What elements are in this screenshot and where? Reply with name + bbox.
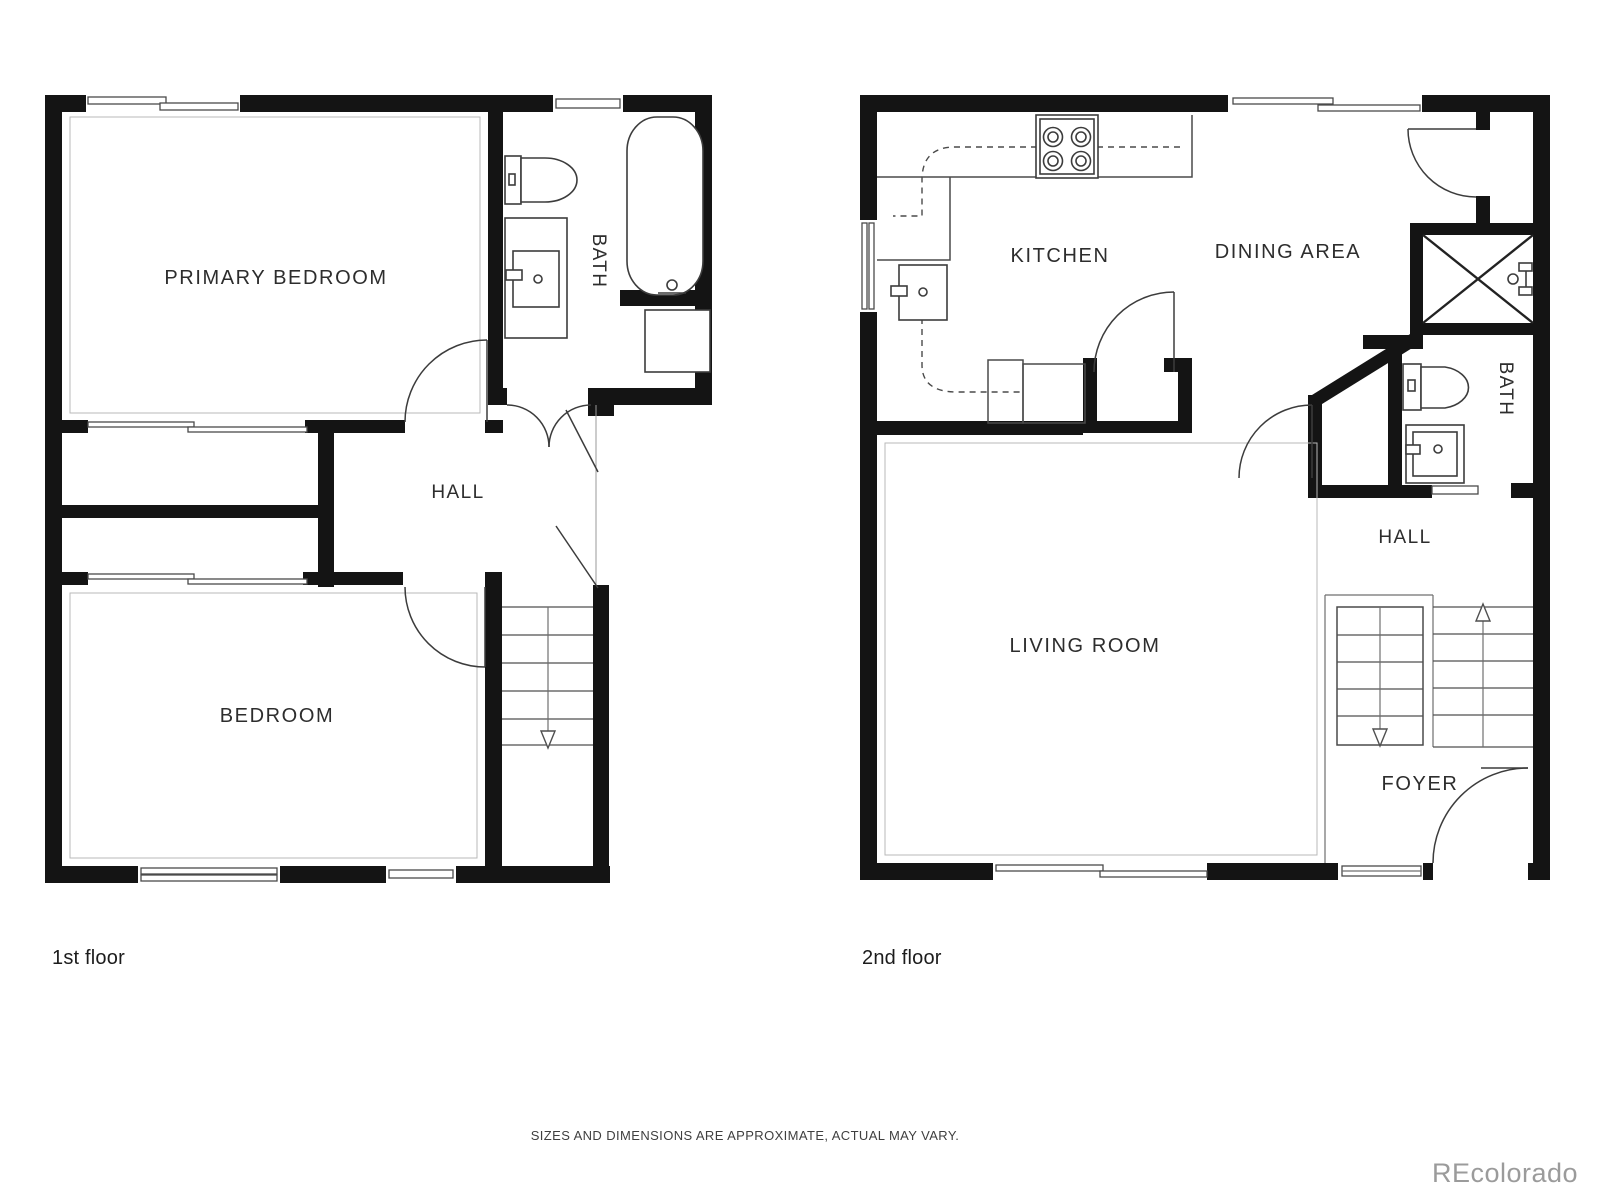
shower-icon: [1423, 235, 1533, 323]
second-floor-plan: KITCHEN DINING AREA BATH HALL LIVING ROO…: [860, 95, 1550, 880]
floor-caption-1: 1st floor: [52, 947, 125, 969]
second-floor-windows: [860, 95, 1550, 880]
first-floor-plan: PRIMARY BEDROOM BATH HALL BEDROOM: [45, 95, 712, 883]
vanity-sink-icon-2: [1406, 425, 1464, 483]
room-label-hall-2: HALL: [1378, 527, 1431, 548]
toilet-icon-2: [1403, 364, 1468, 410]
first-floor-stairs: [502, 607, 593, 748]
bathtub-icon: [627, 117, 703, 295]
kitchen-fixtures: [877, 115, 1192, 423]
linen-cabinet-icon: [645, 310, 710, 372]
watermark-text: REcolorado: [1432, 1158, 1578, 1188]
room-label-bath-2: BATH: [1495, 362, 1516, 417]
kitchen-sink-icon: [891, 265, 947, 320]
disclaimer-text: SIZES AND DIMENSIONS ARE APPROXIMATE, AC…: [531, 1128, 960, 1143]
room-label-primary-bedroom: PRIMARY BEDROOM: [164, 267, 387, 289]
vanity-sink-icon: [505, 218, 567, 338]
first-floor-walls: [45, 95, 712, 883]
stairs-down-arrow-icon-2: [1373, 729, 1387, 746]
stove-icon: [1036, 115, 1098, 178]
floor-plan-page: PRIMARY BEDROOM BATH HALL BEDROOM: [0, 0, 1600, 1199]
room-label-bath-1: BATH: [588, 234, 609, 289]
room-label-kitchen: KITCHEN: [1011, 245, 1110, 267]
room-label-bedroom: BEDROOM: [220, 705, 335, 727]
room-label-hall-1: HALL: [431, 482, 484, 503]
captions: 1st floor 2nd floor SIZES AND DIMENSIONS…: [52, 947, 1578, 1188]
toilet-icon: [505, 156, 577, 204]
second-floor-stairs: [1325, 595, 1533, 863]
room-label-foyer: FOYER: [1382, 773, 1459, 795]
first-floor-room-faces: [70, 117, 480, 858]
floor-plan-canvas: PRIMARY BEDROOM BATH HALL BEDROOM: [0, 0, 1600, 1199]
floor-caption-2: 2nd floor: [862, 947, 942, 969]
first-floor-windows: [86, 95, 623, 883]
room-label-living-room: LIVING ROOM: [1010, 635, 1161, 657]
room-label-dining-area: DINING AREA: [1215, 241, 1362, 263]
